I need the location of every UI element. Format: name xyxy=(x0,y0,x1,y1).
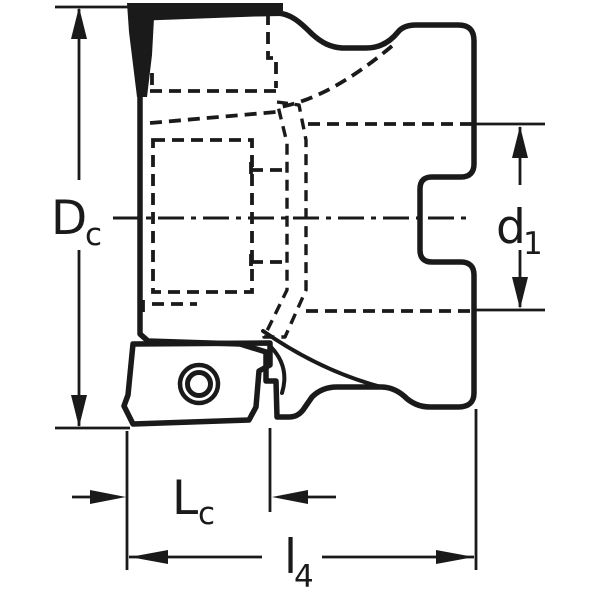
l4-arrow-left xyxy=(130,550,168,564)
insert-screw-hole xyxy=(188,373,211,396)
dc-label: D xyxy=(51,191,87,246)
l4-label-sub: 4 xyxy=(294,559,314,595)
lc-arrow-right xyxy=(272,490,308,504)
dc-label-sub: c xyxy=(85,217,102,253)
lc-label: L xyxy=(172,471,198,526)
insert-group xyxy=(124,343,270,424)
dc-arrow-up xyxy=(71,7,87,39)
hidden-top-edge-2 xyxy=(268,13,276,88)
hidden-step-lower xyxy=(251,254,288,268)
lc-label-sub: c xyxy=(198,496,215,532)
milling-cutter-diagram: D c d 1 L c l 4 xyxy=(0,0,600,600)
d1-arrow-up xyxy=(512,126,528,158)
technical-drawing-canvas: D c d 1 L c l 4 xyxy=(0,0,600,600)
hidden-lower-pocket-lines xyxy=(143,300,197,312)
l4-arrow-right xyxy=(436,550,474,564)
dimension-d1: d 1 xyxy=(472,124,545,310)
hidden-top-edge-1 xyxy=(150,73,278,91)
hidden-pocket-outline xyxy=(153,140,252,292)
d1-arrow-down xyxy=(512,277,528,309)
hidden-top-edge-3 xyxy=(150,112,276,123)
lc-arrow-left xyxy=(90,490,126,504)
dc-arrow-down xyxy=(71,395,87,427)
d1-label-sub: 1 xyxy=(523,226,543,262)
hidden-flute-curve xyxy=(280,46,392,107)
hidden-step-upper xyxy=(251,162,288,176)
d1-label: d xyxy=(496,200,526,255)
